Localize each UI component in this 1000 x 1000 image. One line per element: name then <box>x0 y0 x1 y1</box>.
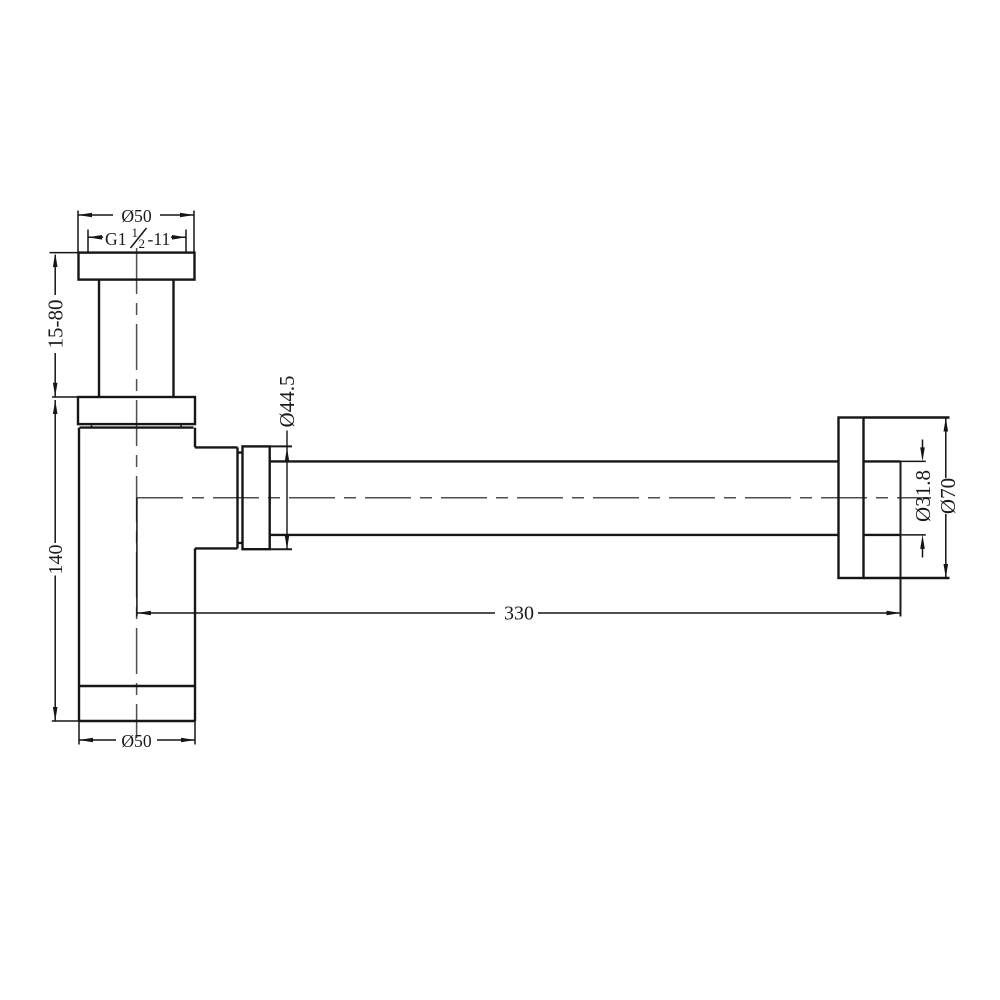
svg-text:Ø50: Ø50 <box>121 206 152 226</box>
svg-text:15-80: 15-80 <box>43 300 67 349</box>
svg-text:Ø50: Ø50 <box>121 731 152 751</box>
svg-text:Ø44.5: Ø44.5 <box>275 376 299 428</box>
svg-text:-11: -11 <box>148 229 171 249</box>
svg-text:Ø31.8: Ø31.8 <box>911 470 935 522</box>
svg-text:1: 1 <box>132 225 139 240</box>
svg-text:330: 330 <box>504 603 534 625</box>
svg-text:Ø70: Ø70 <box>936 478 960 514</box>
svg-text:2: 2 <box>139 236 146 251</box>
svg-text:G1: G1 <box>105 229 127 249</box>
svg-text:140: 140 <box>45 545 67 575</box>
